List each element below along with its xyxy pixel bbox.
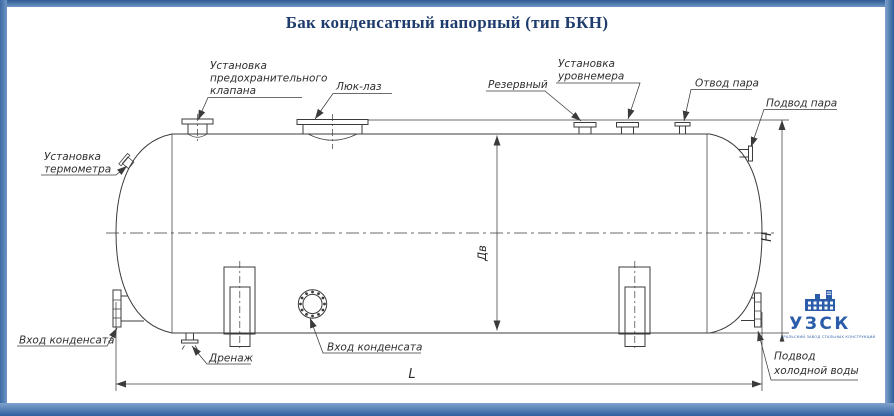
tank-shell [106,134,776,333]
cold-water-inlet-nozzle [741,293,761,327]
frame-bottom-border [0,403,894,416]
logo-name: УЗСК [781,316,859,334]
right-support-saddle [619,261,650,351]
manhole-label: Люк-лаз [335,81,382,93]
thermometer-label-2: термометра [44,164,111,176]
cold-water-label-1: Подвод [774,351,815,363]
left-support-saddle [224,261,255,351]
drain-label: Дренаж [208,353,254,365]
tank-drawing: Дв H L Установка предохранительного клап… [0,0,894,416]
thermometer-nozzle [119,153,136,170]
safety-valve-label-1: Установка [210,60,267,72]
frame-top-border [0,0,894,7]
logo-tagline: УРАЛЬСКИЙ ЗАВОД СТАЛЬНЫХ КОНСТРУКЦИЙ [781,335,859,339]
callout-labels: Установка предохранительного клапана Люк… [19,58,859,377]
frame-right-border [885,0,894,416]
safety-valve-label-3: клапана [210,85,256,97]
steam-outlet-label: Отвод пара [695,78,759,90]
safety-valve-nozzle [182,114,213,143]
drain-nozzle [182,333,199,350]
height-label: H [760,232,775,242]
reserve-nozzle [574,123,596,135]
condensate-inlet-left-label: Вход конденсата [19,335,114,347]
condensate-inlet-flange-circle [298,290,326,318]
dimension-height: H [368,120,789,342]
factory-icon [800,287,840,312]
level-gauge-label-2: уровнемера [557,71,624,83]
condensate-inlet-left-nozzle [113,290,144,327]
condensate-inlet-center-label: Вход конденсата [327,342,422,354]
level-gauge-label-1: Установка [558,58,615,70]
dimension-length: L [116,302,762,391]
safety-valve-label-2: предохранительного [210,73,327,85]
cold-water-label-2: холодной воды [773,365,859,377]
thermometer-label-1: Установка [44,151,101,163]
steam-outlet-nozzle [675,123,690,135]
manhole-nozzle [297,114,368,149]
diameter-label: Дв [475,245,489,262]
reserve-label: Резервный [488,79,548,91]
leader-lines [17,83,858,380]
level-gauge-nozzle [617,123,639,135]
uzsk-logo: УЗСК УРАЛЬСКИЙ ЗАВОД СТАЛЬНЫХ КОНСТРУКЦИ… [781,287,859,339]
length-label: L [408,367,415,382]
frame-left-border [0,0,7,416]
steam-inlet-label: Подвод пара [766,98,837,110]
steam-inlet-nozzle [738,146,753,161]
